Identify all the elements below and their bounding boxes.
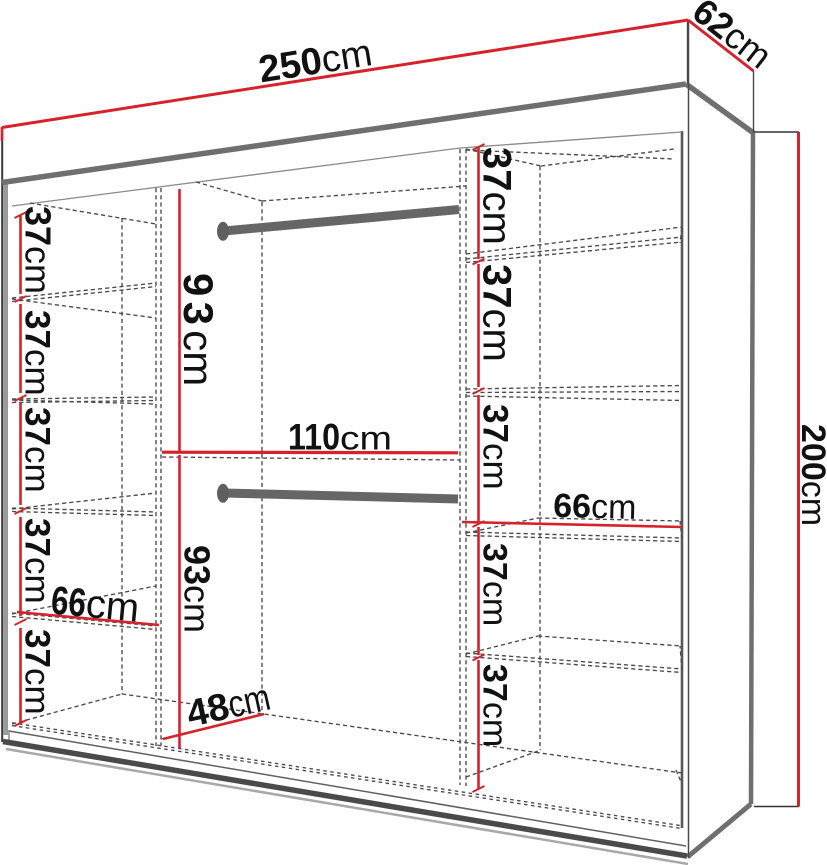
svg-text:37cm: 37cm [476,404,515,490]
svg-text:37cm: 37cm [475,147,519,245]
svg-text:37cm: 37cm [475,264,519,362]
svg-text:93cm: 93cm [177,545,218,633]
svg-text:37cm: 37cm [18,629,57,715]
svg-text:110cm: 110cm [288,417,392,458]
svg-text:37cm: 37cm [18,206,59,294]
svg-text:37cm: 37cm [476,664,514,747]
svg-text:66cm: 66cm [49,579,141,631]
svg-text:37cm: 37cm [18,407,57,493]
svg-text:200cm: 200cm [794,424,827,526]
svg-text:37cm: 37cm [18,310,57,396]
svg-text:37cm: 37cm [476,543,514,626]
svg-text:66cm: 66cm [553,487,637,527]
svg-text:93cm: 93cm [175,273,222,386]
svg-text:37cm: 37cm [18,518,57,604]
